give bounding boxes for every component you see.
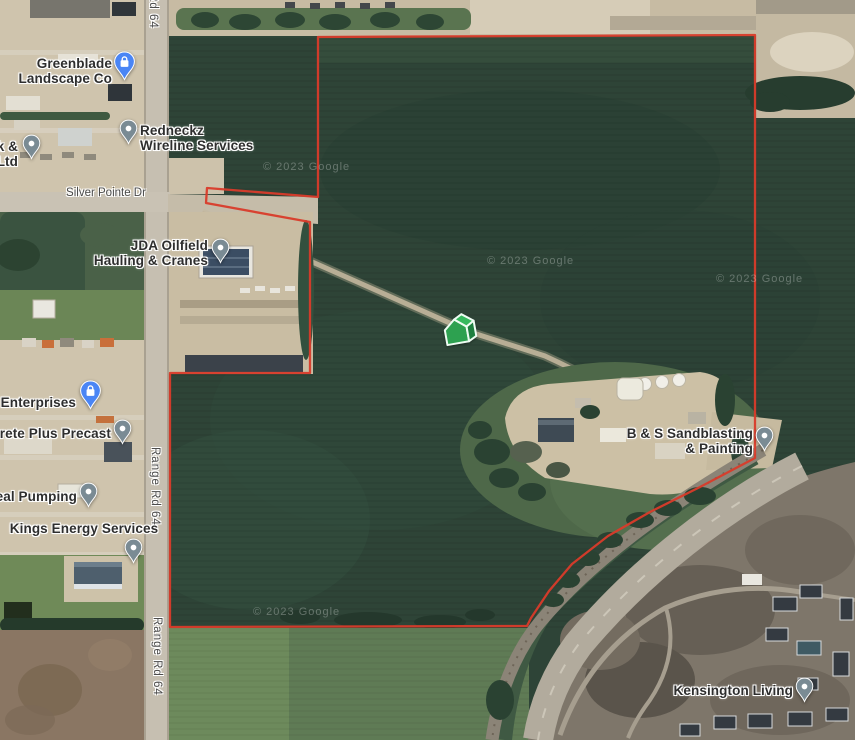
dot-icon (131, 545, 137, 551)
terrain-industrial-left (0, 0, 150, 740)
map-pin-greenblade[interactable] (112, 51, 137, 84)
dot-icon (218, 245, 224, 251)
green-house-marker[interactable] (436, 306, 480, 357)
dot-icon (126, 126, 132, 132)
map-pin-kensington[interactable] (794, 677, 815, 706)
terrain-gravel-pit (745, 0, 855, 118)
map-pin-jda[interactable] (210, 238, 231, 267)
road-label-silver-pointe-dr[interactable]: Silver Pointe Dr (58, 187, 154, 199)
map-pin-bs-sandblasting[interactable] (754, 426, 775, 455)
place-label-greenblade[interactable]: Greenblade Landscape Co (0, 56, 112, 86)
place-label-k-ltd[interactable]: k & Ltd (0, 139, 18, 169)
road-label-range-rd-64-top[interactable]: Range Rd 64 (147, 0, 159, 29)
place-label-kensington[interactable]: Kensington Living (650, 683, 793, 698)
terrain-top-strip (169, 0, 855, 36)
place-label-bs-sandblasting[interactable]: B & S Sandblasting & Painting (600, 426, 753, 456)
map-pin-y-enterprises[interactable] (78, 380, 103, 413)
map-pin-kings-energy[interactable] (123, 538, 144, 567)
dot-icon (802, 684, 808, 690)
map-pin-redneckz[interactable] (118, 119, 139, 148)
dot-icon (762, 433, 768, 439)
place-label-jda[interactable]: JDA Oilfield Hauling & Cranes (40, 238, 208, 268)
map-pin-precast[interactable] (112, 419, 133, 448)
place-label-kings-energy[interactable]: Kings Energy Services (8, 521, 160, 536)
place-label-y-enterprises[interactable]: y Enterprises (0, 395, 76, 410)
road-label-range-rd-64-mid[interactable]: Range Rd 64 (149, 447, 161, 526)
satellite-map-canvas[interactable]: Greenblade Landscape Co k & Ltd Redneckz… (0, 0, 855, 740)
place-label-precast[interactable]: crete Plus Precast (0, 426, 111, 441)
satellite-imagery (0, 0, 855, 740)
map-pin-k-ltd[interactable] (21, 134, 42, 163)
dot-icon (120, 426, 126, 432)
place-label-redneckz[interactable]: Redneckz Wireline Services (140, 123, 253, 153)
terrain-jda-yard (169, 212, 314, 374)
dot-icon (86, 489, 92, 495)
map-pin-pumping[interactable] (78, 482, 99, 511)
terrain-bottom-pasture (169, 628, 529, 740)
road-label-range-rd-64-bottom[interactable]: Range Rd 64 (151, 617, 163, 696)
place-label-pumping[interactable]: eal Pumping (0, 489, 77, 504)
dot-icon (29, 141, 35, 147)
